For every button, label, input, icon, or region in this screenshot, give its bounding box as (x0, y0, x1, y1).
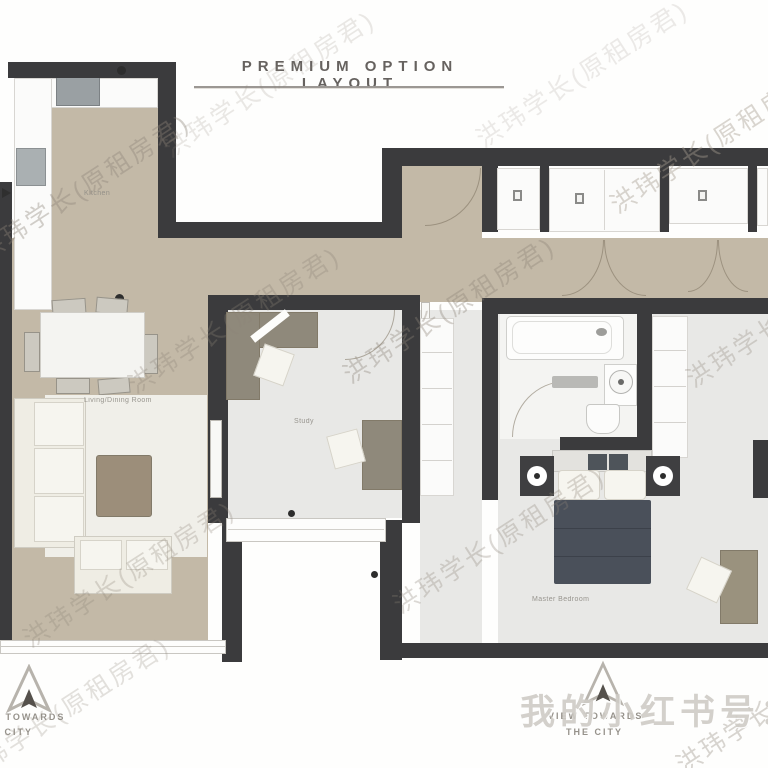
watermark-footer: 我的小红书号： (520, 684, 768, 735)
wall (482, 298, 768, 314)
wall (753, 440, 768, 498)
sofa-cushion (34, 448, 84, 494)
wall (0, 182, 12, 644)
wall (8, 62, 172, 78)
dining-chair (56, 378, 90, 394)
room-label-living-dining: Living/Dining Room (84, 397, 152, 404)
title-underline (194, 86, 504, 89)
fixture-icon (575, 193, 584, 204)
duvet-fold (554, 528, 651, 529)
study-desk (226, 312, 260, 400)
compass-icon (6, 664, 52, 714)
dining-chair (24, 332, 40, 372)
pillow (604, 470, 646, 500)
wardrobe (652, 316, 688, 458)
ceiling-light-dot (288, 510, 295, 517)
wall (748, 166, 757, 232)
ceiling-light-dot (371, 571, 378, 578)
wall (382, 148, 768, 166)
shelf-line (422, 388, 452, 389)
loveseat-cushion (126, 540, 168, 570)
shelf-line (654, 350, 686, 351)
wall (540, 166, 549, 232)
closet (669, 168, 748, 224)
room-label-kitchen: Kitchen (84, 190, 110, 197)
accent-pillow (588, 454, 607, 470)
bookshelf (420, 318, 454, 496)
loveseat-cushion (80, 540, 122, 570)
window-band (0, 640, 226, 654)
window-line (0, 646, 226, 647)
shelf-line (654, 422, 686, 423)
tub-faucet (596, 328, 607, 336)
sofa-cushion (34, 402, 84, 446)
shelf-line (654, 386, 686, 387)
wall (482, 314, 498, 500)
pillow (558, 470, 600, 500)
compass-label-line1: VIEW TOWARDS (0, 712, 65, 722)
wall (637, 305, 652, 452)
ceiling-light-dot (117, 66, 126, 75)
door-leaf (210, 420, 222, 498)
wall (482, 166, 498, 232)
kitchen-sink (16, 148, 46, 186)
fixture-icon (513, 190, 522, 201)
wall (402, 295, 420, 523)
room-label-study: Study (294, 418, 314, 425)
compass-label-line2: THE CITY (0, 727, 33, 737)
balcony-window (226, 518, 386, 542)
accent-pillow (609, 454, 628, 470)
shelf-line (422, 352, 452, 353)
bathtub-basin (512, 321, 612, 354)
room-label-master-bedroom: Master Bedroom (532, 596, 589, 603)
floor-plan-image: PREMIUM OPTION LAYOUT (0, 0, 768, 768)
bed-duvet (554, 500, 651, 584)
coffee-table (96, 455, 152, 517)
fixture-icon (698, 190, 707, 201)
duvet-fold (554, 556, 651, 557)
dining-chair (97, 377, 130, 396)
window-line (228, 529, 384, 530)
wall (660, 166, 669, 232)
study-side-desk (362, 420, 402, 490)
kitchen-counter-left (14, 78, 52, 310)
door-swing-marker (2, 188, 11, 198)
closet-divider (604, 170, 605, 230)
wall (158, 222, 402, 238)
dining-table (40, 312, 145, 378)
bedroom-desk (720, 550, 758, 624)
lamp-dot (660, 473, 666, 479)
toilet (586, 404, 620, 434)
wall (222, 295, 405, 310)
corridor-floor (176, 238, 768, 302)
wall (390, 643, 768, 658)
closet (757, 168, 768, 226)
shelf-line (422, 460, 452, 461)
bath-shelf (552, 376, 598, 388)
shelf-line (422, 424, 452, 425)
lamp-dot (534, 473, 540, 479)
sink-drain (618, 379, 624, 385)
wall (158, 62, 176, 238)
